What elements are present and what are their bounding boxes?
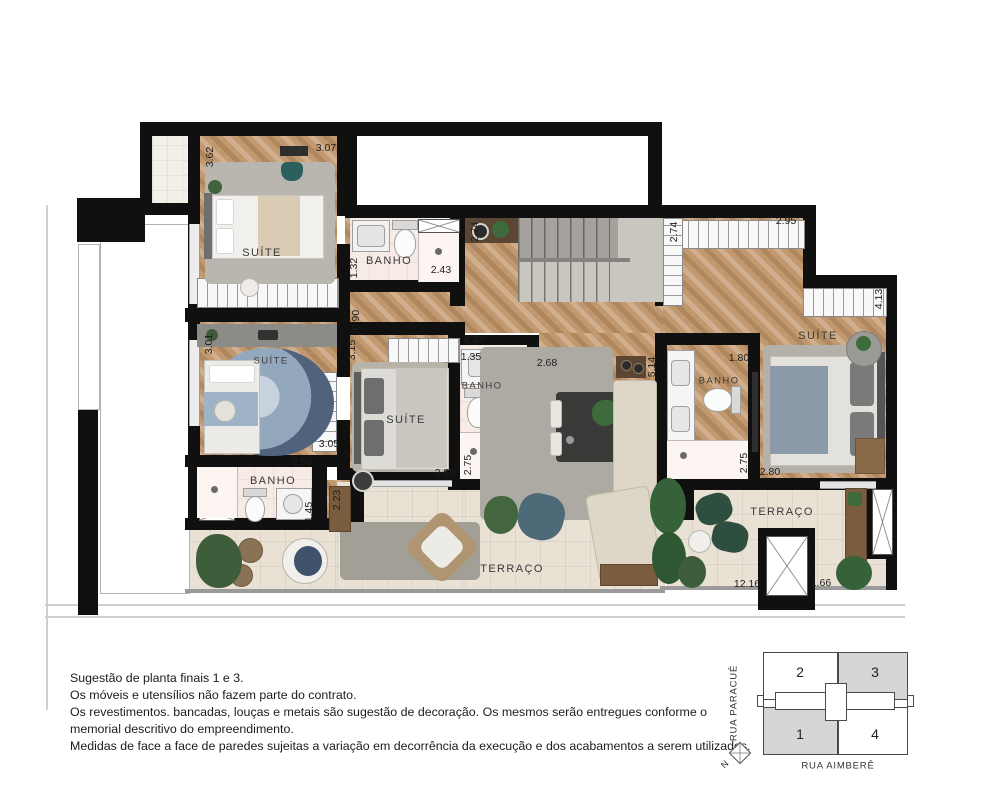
dim-label: 4.37 — [464, 334, 484, 346]
dim-label: 2.50 — [435, 467, 455, 479]
slab-edge-line-left — [46, 205, 48, 710]
dim-label: 2.75 — [738, 453, 750, 473]
room-label-terraco1: TERRAÇO — [480, 563, 544, 575]
dim-label: 5.14 — [646, 357, 658, 377]
service-panel — [872, 489, 893, 555]
dim-label: 1.45 — [303, 502, 315, 522]
island-sink — [566, 436, 574, 444]
island-stool — [550, 400, 562, 428]
room-label-suite2: SUÍTE — [254, 356, 289, 367]
terrace2-bench-plant — [848, 492, 862, 506]
elevator-door-panel — [766, 536, 808, 596]
keyplan-core — [825, 683, 847, 721]
terrace2-palm — [836, 556, 872, 590]
banho3-toilet — [245, 496, 265, 522]
room-label-suite3: SUÍTE — [386, 414, 425, 426]
island-stool — [550, 432, 562, 456]
suite3-pillow — [364, 420, 384, 456]
room-label-banho1: BANHO — [366, 255, 412, 267]
dim-label: 3.07 — [316, 142, 336, 154]
room-label-banho2: BANHO — [462, 381, 503, 392]
dim-label: 0.90 — [350, 310, 362, 330]
north-compass-icon — [729, 742, 752, 765]
keyplan-unit-2-number: 2 — [796, 664, 804, 680]
cooktop-burner — [621, 360, 632, 371]
suite3-pillow — [364, 378, 384, 414]
dim-label: 3.15 — [346, 340, 358, 360]
floor-plan-page: SUÍTE BANHO SUÍTE SUÍTE BANHO BANHO SUÍT… — [0, 0, 1000, 794]
north-label: N — [719, 758, 731, 770]
dim-label: 2.68 — [537, 357, 557, 369]
room-label-banho3: BANHO — [250, 475, 296, 487]
suite4-pillow — [850, 362, 874, 406]
balcony-tile-floor — [152, 136, 188, 206]
pillar — [78, 410, 98, 615]
terrace1-palm — [650, 478, 686, 534]
suite2-bed-pillow — [209, 365, 255, 383]
banho4-toilet — [703, 388, 732, 412]
room-label-terraco2: TERRAÇO — [750, 506, 814, 518]
suite1-armchair — [281, 162, 303, 181]
dim-label: 3.01 — [203, 334, 215, 354]
wall — [648, 122, 662, 218]
window — [189, 340, 200, 426]
street-label-left: RUA PARACUÊ — [729, 665, 740, 741]
wall — [345, 205, 815, 218]
suite1-tv-console — [280, 146, 308, 156]
banho1-toilet — [394, 229, 416, 258]
closet-suite3 — [388, 338, 460, 363]
disclaimer-notes: Sugestão de planta finais 1 e 3. Os móve… — [70, 670, 730, 755]
banho4-shower-head — [680, 452, 687, 459]
dim-label: 4.13 — [873, 289, 885, 309]
dim-label: 2.74 — [469, 222, 481, 242]
terrace2-bush — [678, 556, 706, 588]
keyplan-unit-1-number: 1 — [796, 726, 804, 742]
banho3-shower — [197, 467, 238, 518]
keyplan-unit-4-number: 4 — [871, 726, 879, 742]
dim-label: 2.50 — [292, 456, 312, 468]
side-void-strip — [78, 244, 100, 410]
suite1-bed-headboard — [204, 193, 212, 259]
dim-label: 2.43 — [431, 264, 451, 276]
wall — [77, 198, 145, 242]
banho1-shower-head — [435, 248, 442, 255]
street-label-bottom: RUA AIMBERÊ — [801, 761, 874, 772]
shelf-panel — [418, 219, 460, 233]
banho3-basin — [283, 494, 303, 514]
suite4-tv-panel — [752, 372, 758, 452]
staircase-rail — [518, 258, 630, 262]
terrace1-sideboard — [600, 564, 658, 586]
room-label-suite4: SUÍTE — [798, 330, 837, 342]
dim-label: 2.80 — [760, 466, 780, 478]
banho3-shower-head — [211, 486, 218, 493]
dim-label: 2.74 — [668, 222, 680, 242]
wall — [145, 203, 188, 215]
banho4-basin — [671, 360, 690, 386]
banho4-basin — [671, 406, 690, 432]
suite2-desk-item — [258, 330, 278, 340]
note-line-4: memorial descritivo do empreendimento. — [70, 721, 730, 738]
banho4-shower — [667, 440, 748, 479]
wall — [803, 275, 897, 288]
terrace1-plant — [196, 534, 242, 588]
dim-label: 3.05 — [319, 438, 339, 450]
dim-label: 2.95 — [776, 215, 796, 227]
suite4-desk — [855, 438, 885, 474]
suite4-blanket — [770, 366, 828, 454]
terrace1-rail — [185, 589, 665, 593]
suite4-table-plant — [856, 336, 871, 351]
banho1-basin — [357, 225, 385, 247]
banho4-toilet-tank — [731, 386, 741, 414]
dim-label: 2.23 — [331, 490, 343, 510]
dim-label: 1.66 — [811, 577, 831, 589]
suite1-plant — [208, 180, 222, 194]
note-line-2: Os móveis e utensílios não fazem parte d… — [70, 687, 730, 704]
wall — [655, 333, 760, 345]
keyplan-unit-3-number: 3 — [871, 664, 879, 680]
suite1-side-table — [240, 278, 259, 297]
staircase-upper-shade — [518, 218, 618, 260]
dim-label: 12.16 — [734, 578, 760, 590]
suite3-bed-headboard — [354, 372, 361, 464]
egg-chair-seat — [294, 546, 322, 576]
keyplan-notch-left — [757, 695, 764, 707]
room-label-suite1: SUÍTE — [242, 247, 281, 259]
note-line-5: Medidas de face a face de paredes sujeit… — [70, 738, 730, 755]
wall — [185, 455, 350, 467]
plant-on-shelf — [492, 221, 509, 238]
slab-edge-line — [45, 616, 905, 618]
dim-label: 1.35 — [461, 351, 481, 363]
suite3-side-table — [352, 470, 374, 492]
dim-label: 1.32 — [348, 258, 360, 278]
side-void — [100, 224, 190, 594]
note-line-1: Sugestão de planta finais 1 e 3. — [70, 670, 730, 687]
terrace2-side-table — [688, 530, 711, 553]
dim-label: 3.62 — [204, 147, 216, 167]
dim-label: 2.75 — [462, 455, 474, 475]
keyplan-notch-right — [907, 695, 914, 707]
dim-label: 1.80 — [729, 352, 749, 364]
room-label-banho4: BANHO — [699, 376, 740, 387]
wall — [337, 136, 350, 216]
cooktop-burner — [633, 363, 644, 374]
wall — [140, 122, 660, 136]
suite1-pillow — [216, 228, 234, 254]
suite2-pouf — [214, 400, 236, 422]
wall — [448, 335, 539, 345]
keyplan: 2 3 1 4 RUA PARACUÊ RUA AIMBERÊ N — [720, 645, 930, 780]
note-line-3: Os revestimentos. bancadas, louças e met… — [70, 704, 730, 721]
wall — [185, 308, 350, 322]
suite1-pillow — [216, 199, 234, 225]
